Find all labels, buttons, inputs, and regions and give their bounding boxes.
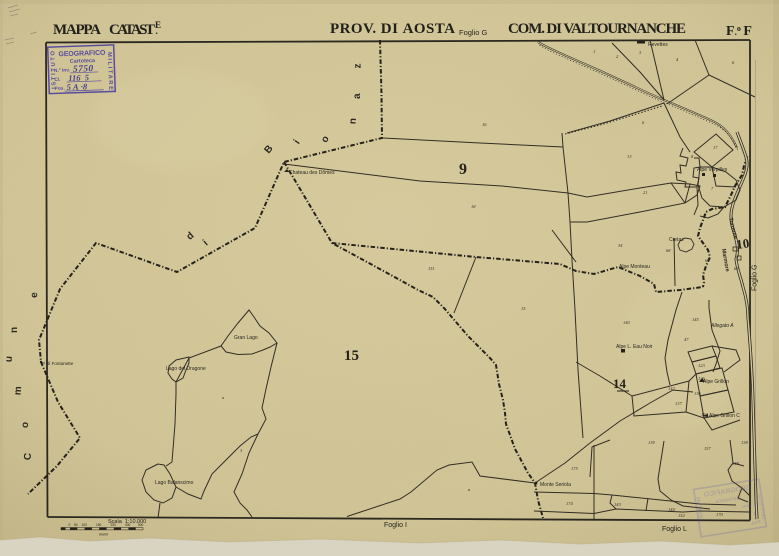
- svg-text:157: 157: [704, 446, 712, 451]
- svg-text:148: 148: [732, 461, 740, 466]
- svg-text:170: 170: [716, 512, 724, 517]
- svg-text:142: 142: [668, 386, 676, 391]
- svg-text:151: 151: [428, 266, 435, 271]
- svg-text:61: 61: [705, 258, 710, 263]
- svg-text:47: 47: [684, 337, 689, 342]
- svg-text:MAPPA: MAPPA: [53, 22, 101, 38]
- svg-text:175: 175: [571, 466, 579, 471]
- svg-text:138: 138: [741, 440, 749, 445]
- svg-text:150: 150: [96, 523, 102, 527]
- svg-text:Monte Seriola: Monte Seriola: [540, 482, 571, 488]
- svg-text:Allegato A: Allegato A: [710, 323, 734, 329]
- svg-text:139: 139: [648, 440, 656, 445]
- svg-text:m: m: [13, 386, 25, 396]
- svg-text:PROV. DI AOSTA: PROV. DI AOSTA: [330, 21, 455, 37]
- svg-text:COM. DI VALTOURNANCHE: COM. DI VALTOURNANCHE: [508, 21, 686, 37]
- svg-text:Gran Lago: Gran Lago: [234, 335, 258, 341]
- svg-text:Foglio L: Foglio L: [662, 526, 687, 533]
- svg-text:17: 17: [713, 145, 718, 150]
- svg-text:137: 137: [675, 401, 683, 406]
- svg-text:Lago del Dragone: Lago del Dragone: [166, 366, 206, 372]
- svg-text:123: 123: [698, 363, 706, 368]
- svg-text:143: 143: [614, 502, 622, 507]
- svg-text:Cl.: Cl.: [54, 77, 60, 83]
- svg-text:100: 100: [82, 523, 88, 527]
- svg-text:9: 9: [459, 161, 467, 178]
- svg-text:Alpe Grillon: Alpe Grillon: [703, 379, 729, 385]
- svg-text:14: 14: [613, 376, 627, 391]
- svg-text:P. di Fontanette: P. di Fontanette: [42, 361, 74, 366]
- svg-text:Foglio I: Foglio I: [384, 522, 407, 529]
- svg-text:n: n: [348, 118, 359, 125]
- svg-text:500: 500: [138, 523, 144, 527]
- svg-text:z: z: [352, 63, 363, 68]
- svg-text:Pos.: Pos.: [55, 86, 65, 92]
- svg-text:Cretaz: Cretaz: [669, 237, 684, 243]
- svg-text:Foglio G: Foglio G: [752, 265, 759, 291]
- svg-text:u: u: [4, 356, 15, 363]
- svg-text:200: 200: [111, 523, 117, 527]
- svg-text:Chateau des Dômes: Chateau des Dômes: [289, 170, 335, 176]
- svg-text:63: 63: [734, 266, 739, 271]
- svg-text:Alpe Monteau: Alpe Monteau: [619, 264, 650, 270]
- svg-text:18: 18: [471, 204, 476, 209]
- svg-text:13: 13: [627, 154, 632, 159]
- svg-text:Lago Balanscimo: Lago Balanscimo: [155, 480, 194, 486]
- svg-text:0: 0: [69, 523, 71, 527]
- svg-text:Revettes: Revettes: [648, 42, 668, 48]
- svg-text:136: 136: [694, 391, 702, 396]
- svg-text:15: 15: [521, 306, 526, 311]
- svg-text:C: C: [23, 452, 35, 460]
- svg-text:o: o: [20, 422, 31, 428]
- svg-text:21: 21: [643, 190, 648, 195]
- svg-text:a: a: [352, 93, 363, 99]
- svg-text:140: 140: [623, 320, 631, 325]
- svg-text:145: 145: [692, 317, 700, 322]
- svg-text:68: 68: [666, 248, 671, 253]
- svg-text:152: 152: [678, 513, 686, 518]
- svg-text:174: 174: [566, 501, 574, 506]
- svg-text:metri: metri: [99, 532, 108, 537]
- svg-text:Foglio G: Foglio G: [459, 28, 488, 37]
- svg-text:400: 400: [125, 523, 131, 527]
- svg-text:.: .: [156, 26, 158, 36]
- svg-text:50: 50: [74, 523, 78, 527]
- svg-text:144: 144: [668, 507, 676, 512]
- svg-text:n: n: [9, 327, 20, 333]
- svg-text:15: 15: [344, 348, 359, 364]
- svg-text:Alpe Grillon C: Alpe Grillon C: [709, 413, 740, 419]
- svg-text:1: 1: [593, 49, 595, 54]
- svg-text:16: 16: [482, 122, 487, 127]
- svg-text:Alpe Vorpilles: Alpe Vorpilles: [697, 167, 728, 173]
- svg-text:34: 34: [618, 243, 623, 248]
- svg-text:CATAST: CATAST: [109, 22, 155, 38]
